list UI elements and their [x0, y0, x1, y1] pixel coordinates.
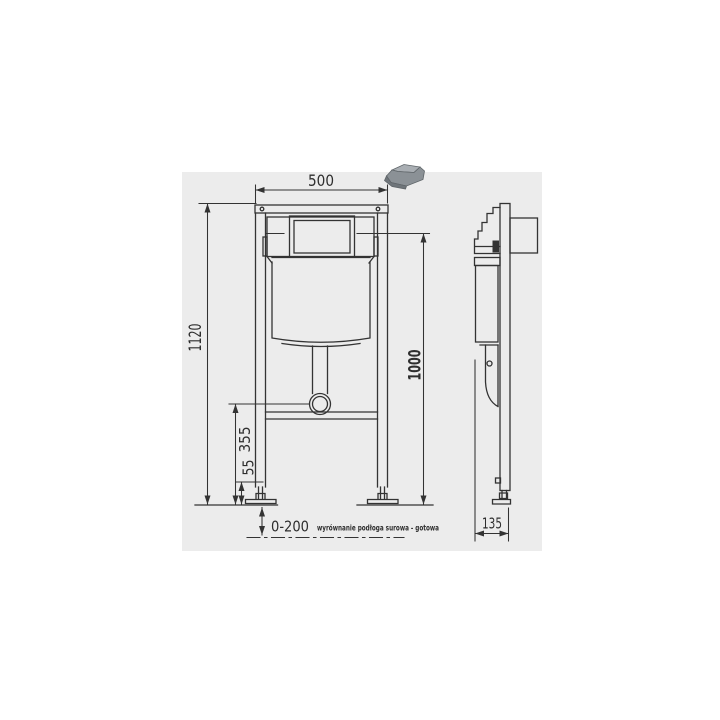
screenshot: 500 1120 1000 355 55	[0, 0, 720, 720]
valve-seal	[493, 241, 500, 253]
technical-drawing: 500 1120 1000 355 55	[0, 0, 720, 720]
floor-adjust-range-value: 0-200	[271, 518, 309, 536]
dimension-outlet-height-value: 355	[236, 427, 254, 453]
dimension-depth-value: 135	[482, 515, 502, 533]
floor-adjust-note: wyrównanie podłoga surowa - gotowa	[317, 524, 439, 533]
drawing-root: 500 1120 1000 355 55	[182, 165, 542, 552]
dimension-foot-height-value: 55	[240, 460, 258, 476]
dimension-width-value: 500	[308, 171, 334, 190]
dimension-total-height-value: 1120	[186, 324, 205, 352]
dimension-flush-height-value: 1000	[406, 349, 426, 380]
